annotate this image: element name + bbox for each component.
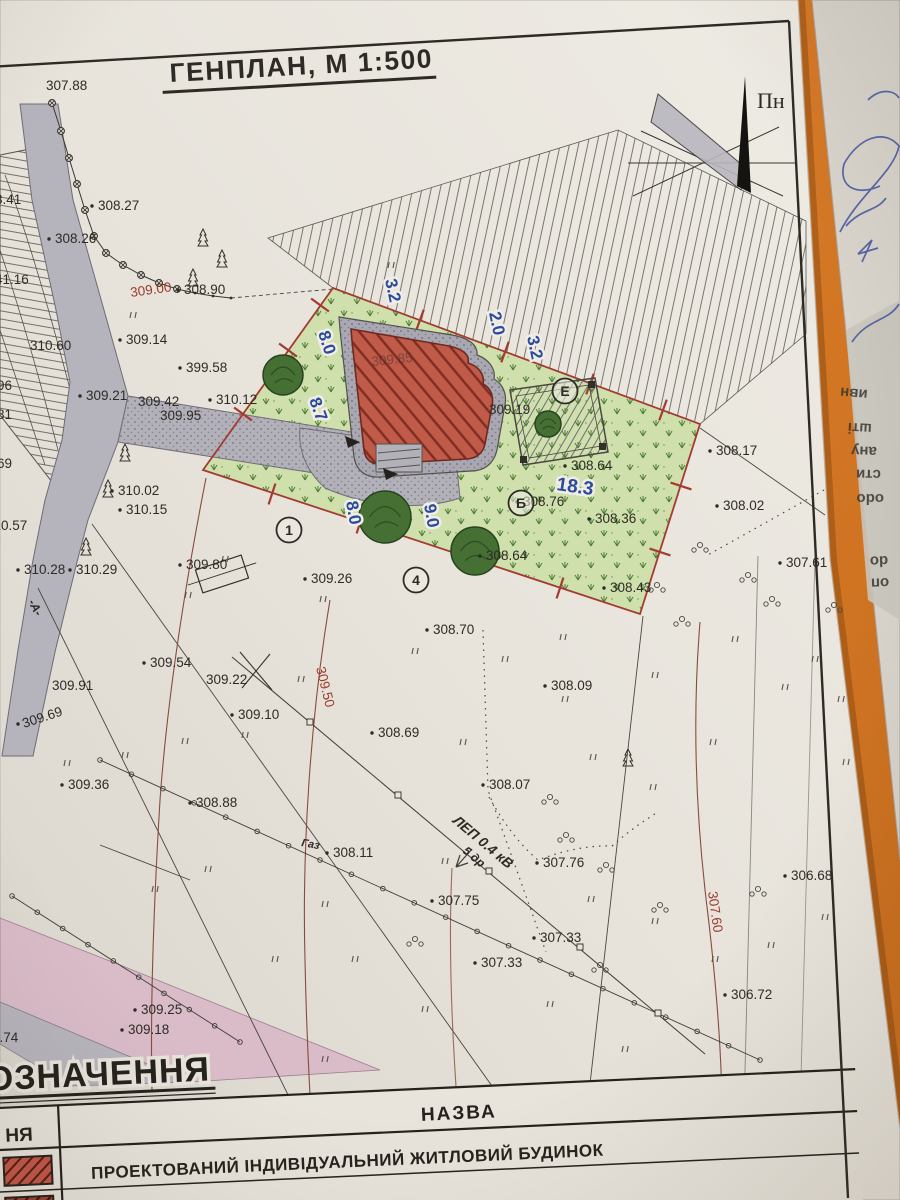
elevation-label: 309.25: [133, 1002, 182, 1017]
svg-text:4: 4: [412, 572, 420, 588]
svg-text:309.91: 309.91: [52, 678, 93, 693]
svg-text:9.74: 9.74: [0, 1030, 19, 1045]
elevation-label: 309.36: [60, 777, 109, 792]
elevation-label: 309.21: [78, 388, 127, 403]
svg-text:41.16: 41.16: [0, 272, 29, 287]
dimension-label: 8.0: [342, 499, 365, 526]
elevation-label: 307.75: [430, 893, 479, 908]
svg-text:310.15: 310.15: [126, 502, 167, 517]
elevation-label: 69: [0, 456, 12, 471]
terrace-corner-post: [520, 456, 527, 463]
elevation-label: 308.09: [543, 678, 592, 693]
svg-text:309.25: 309.25: [141, 1002, 182, 1017]
svg-text:308.26: 308.26: [55, 231, 96, 246]
svg-text:309.18: 309.18: [128, 1022, 169, 1037]
fence-post-icon: [66, 155, 73, 162]
elevation-label: 307.33: [532, 930, 581, 945]
sheet: 307.888.41308.27308.26309.00308.9041.163…: [0, 0, 900, 1200]
elevation-label: 308.69: [370, 725, 419, 740]
elevation-label: 307.33: [473, 955, 522, 970]
svg-text:309.14: 309.14: [126, 332, 168, 347]
svg-text:309.80: 309.80: [186, 557, 227, 572]
terrace-corner-post: [599, 443, 606, 450]
elevation-label: 399.58: [178, 360, 227, 375]
elevation-label: 309.91: [52, 678, 93, 693]
fence-post-icon: [49, 100, 56, 107]
elevation-label: 306.68: [783, 868, 832, 883]
elevation-label: 308.11: [325, 845, 373, 860]
elevation-label: 308.70: [425, 622, 474, 637]
svg-text:310.57: 310.57: [0, 518, 27, 533]
svg-text:309.54: 309.54: [150, 655, 192, 670]
svg-text:310.02: 310.02: [118, 483, 159, 498]
fence-post-icon: [58, 128, 65, 135]
underlying-print-fragment: odo: [857, 490, 885, 507]
svg-text:306.68: 306.68: [791, 868, 832, 883]
svg-text:308.64: 308.64: [486, 548, 528, 563]
svg-text:8.41: 8.41: [0, 192, 21, 207]
elevation-label: 309.54: [142, 655, 191, 670]
power-pole-icon: [395, 792, 401, 798]
svg-text:308.27: 308.27: [98, 198, 139, 213]
svg-text:308.64: 308.64: [571, 458, 613, 473]
elevation-label: 307.88: [46, 78, 87, 93]
fence-post-icon: [138, 272, 145, 279]
power-pole-icon: [486, 868, 492, 874]
elevation-label: 309.26: [303, 571, 352, 586]
elevation-label: 9.74: [0, 1030, 19, 1045]
elevation-label: 310.29: [68, 562, 117, 577]
svg-text:308.36: 308.36: [595, 511, 636, 526]
svg-text:1: 1: [285, 522, 293, 538]
steps: [376, 444, 422, 472]
elevation-label: 308.07: [481, 777, 530, 792]
elevation-label: 307.76: [535, 855, 584, 870]
svg-text:308.07: 308.07: [489, 777, 530, 792]
elevation-label: 308.90: [176, 282, 225, 297]
elevation-label: 81: [0, 407, 12, 422]
elevation-label: 8.41: [0, 192, 21, 207]
svg-text:310.12: 310.12: [216, 392, 257, 407]
svg-text:306.72: 306.72: [731, 987, 772, 1002]
svg-text:309.36: 309.36: [68, 777, 109, 792]
elevation-label: 308.27: [90, 198, 139, 213]
elevation-label: 307.61: [778, 555, 827, 570]
elevation-label: 310.57: [0, 518, 27, 533]
svg-text:309.42: 309.42: [138, 394, 179, 409]
elevation-label: 309.22: [206, 672, 247, 687]
svg-text:307.75: 307.75: [438, 893, 479, 908]
elevation-label: 309.80: [178, 557, 227, 572]
svg-text:307.76: 307.76: [543, 855, 584, 870]
svg-text:308.70: 308.70: [433, 622, 474, 637]
elevation-label: 306.72: [723, 987, 772, 1002]
elevation-label: 309.95: [160, 408, 201, 423]
elevation-label: 308.02: [715, 498, 764, 513]
underlying-print-fragment: шті: [847, 419, 872, 437]
elevation-label: 309.19: [489, 402, 530, 417]
svg-text:96: 96: [0, 378, 12, 393]
terrace-corner-post: [588, 381, 595, 388]
svg-text:81: 81: [0, 407, 12, 422]
tree-icon: [359, 491, 411, 543]
circled-marker: Е: [553, 379, 578, 404]
power-pole-icon: [307, 719, 313, 725]
fence-post-icon: [103, 250, 110, 257]
elevation-label: 310.60: [30, 338, 71, 353]
svg-text:309.10: 309.10: [238, 707, 279, 722]
elevation-label: 309.14: [118, 332, 167, 347]
underlying-print-fragment: сти: [856, 466, 881, 483]
dimension-label: 9.0: [420, 502, 443, 529]
svg-text:308.43: 308.43: [610, 580, 651, 595]
svg-text:308.02: 308.02: [723, 498, 764, 513]
elevation-label: 96: [0, 378, 12, 393]
svg-text:310.60: 310.60: [30, 338, 71, 353]
underlying-print-fragment: do: [870, 552, 889, 570]
circled-marker: 4: [404, 568, 429, 593]
fence-post-icon: [120, 262, 127, 269]
elevation-label: 310.12: [208, 392, 257, 407]
elevation-label: 308.26: [47, 231, 96, 246]
circled-marker: Б: [509, 491, 534, 516]
elevation-label: 308.36: [587, 511, 636, 526]
elevation-label: 309.42: [138, 394, 179, 409]
svg-text:310.29: 310.29: [76, 562, 117, 577]
elevation-label: 41.16: [0, 272, 29, 287]
svg-text:308.11: 308.11: [333, 845, 373, 860]
legend-symbol-column-header: НЯ: [5, 1125, 33, 1147]
legend-house-swatch-icon: [3, 1156, 52, 1186]
svg-text:308.09: 308.09: [551, 678, 592, 693]
elevation-label: 308.64: [478, 548, 527, 563]
svg-text:309.19: 309.19: [489, 402, 530, 417]
svg-text:307.88: 307.88: [46, 78, 87, 93]
fence-post-icon: [74, 181, 81, 188]
north-label: Пн: [757, 88, 785, 113]
elevation-label: 308.64: [563, 458, 612, 473]
elevation-label: 309.10: [230, 707, 279, 722]
underlying-print-fragment: оп: [871, 574, 890, 592]
elevation-label: 309.18: [120, 1022, 169, 1037]
svg-text:Б: Б: [516, 495, 526, 511]
underlying-print-fragment: ану: [850, 442, 877, 460]
svg-text:308.90: 308.90: [184, 282, 225, 297]
svg-text:308.88: 308.88: [196, 795, 237, 810]
elevation-label: 308.43: [602, 580, 651, 595]
fence-post-icon: [82, 207, 89, 214]
svg-text:399.58: 399.58: [186, 360, 227, 375]
tree-icon: [535, 411, 561, 437]
svg-text:69: 69: [0, 456, 12, 471]
elevation-label: 310.28: [16, 562, 65, 577]
svg-text:309.22: 309.22: [206, 672, 247, 687]
svg-text:310.28: 310.28: [24, 562, 65, 577]
legend-name-column-header: НАЗВА: [420, 1101, 497, 1125]
svg-text:307.33: 307.33: [540, 930, 581, 945]
genplan-drawing: ивнштіанустиododoоп: [0, 0, 900, 1200]
tree-icon: [263, 355, 303, 395]
site-plan-photo: ивнштіанустиododoоп: [0, 0, 900, 1200]
underlying-print-fragment: ивн: [839, 384, 868, 403]
power-pole-icon: [655, 1010, 661, 1016]
elevation-label: 308.17: [708, 443, 757, 458]
svg-text:309.26: 309.26: [311, 571, 352, 586]
svg-text:309.95: 309.95: [160, 408, 201, 423]
svg-text:309.21: 309.21: [86, 388, 127, 403]
elevation-label: 308.88: [188, 795, 237, 810]
svg-text:308.69: 308.69: [378, 725, 419, 740]
circled-marker: 1: [277, 518, 302, 543]
elevation-label: 310.02: [110, 483, 159, 498]
svg-text:308.17: 308.17: [716, 443, 757, 458]
svg-text:307.61: 307.61: [786, 555, 827, 570]
svg-text:Е: Е: [560, 383, 569, 399]
svg-text:307.33: 307.33: [481, 955, 522, 970]
elevation-label: 310.15: [118, 502, 167, 517]
